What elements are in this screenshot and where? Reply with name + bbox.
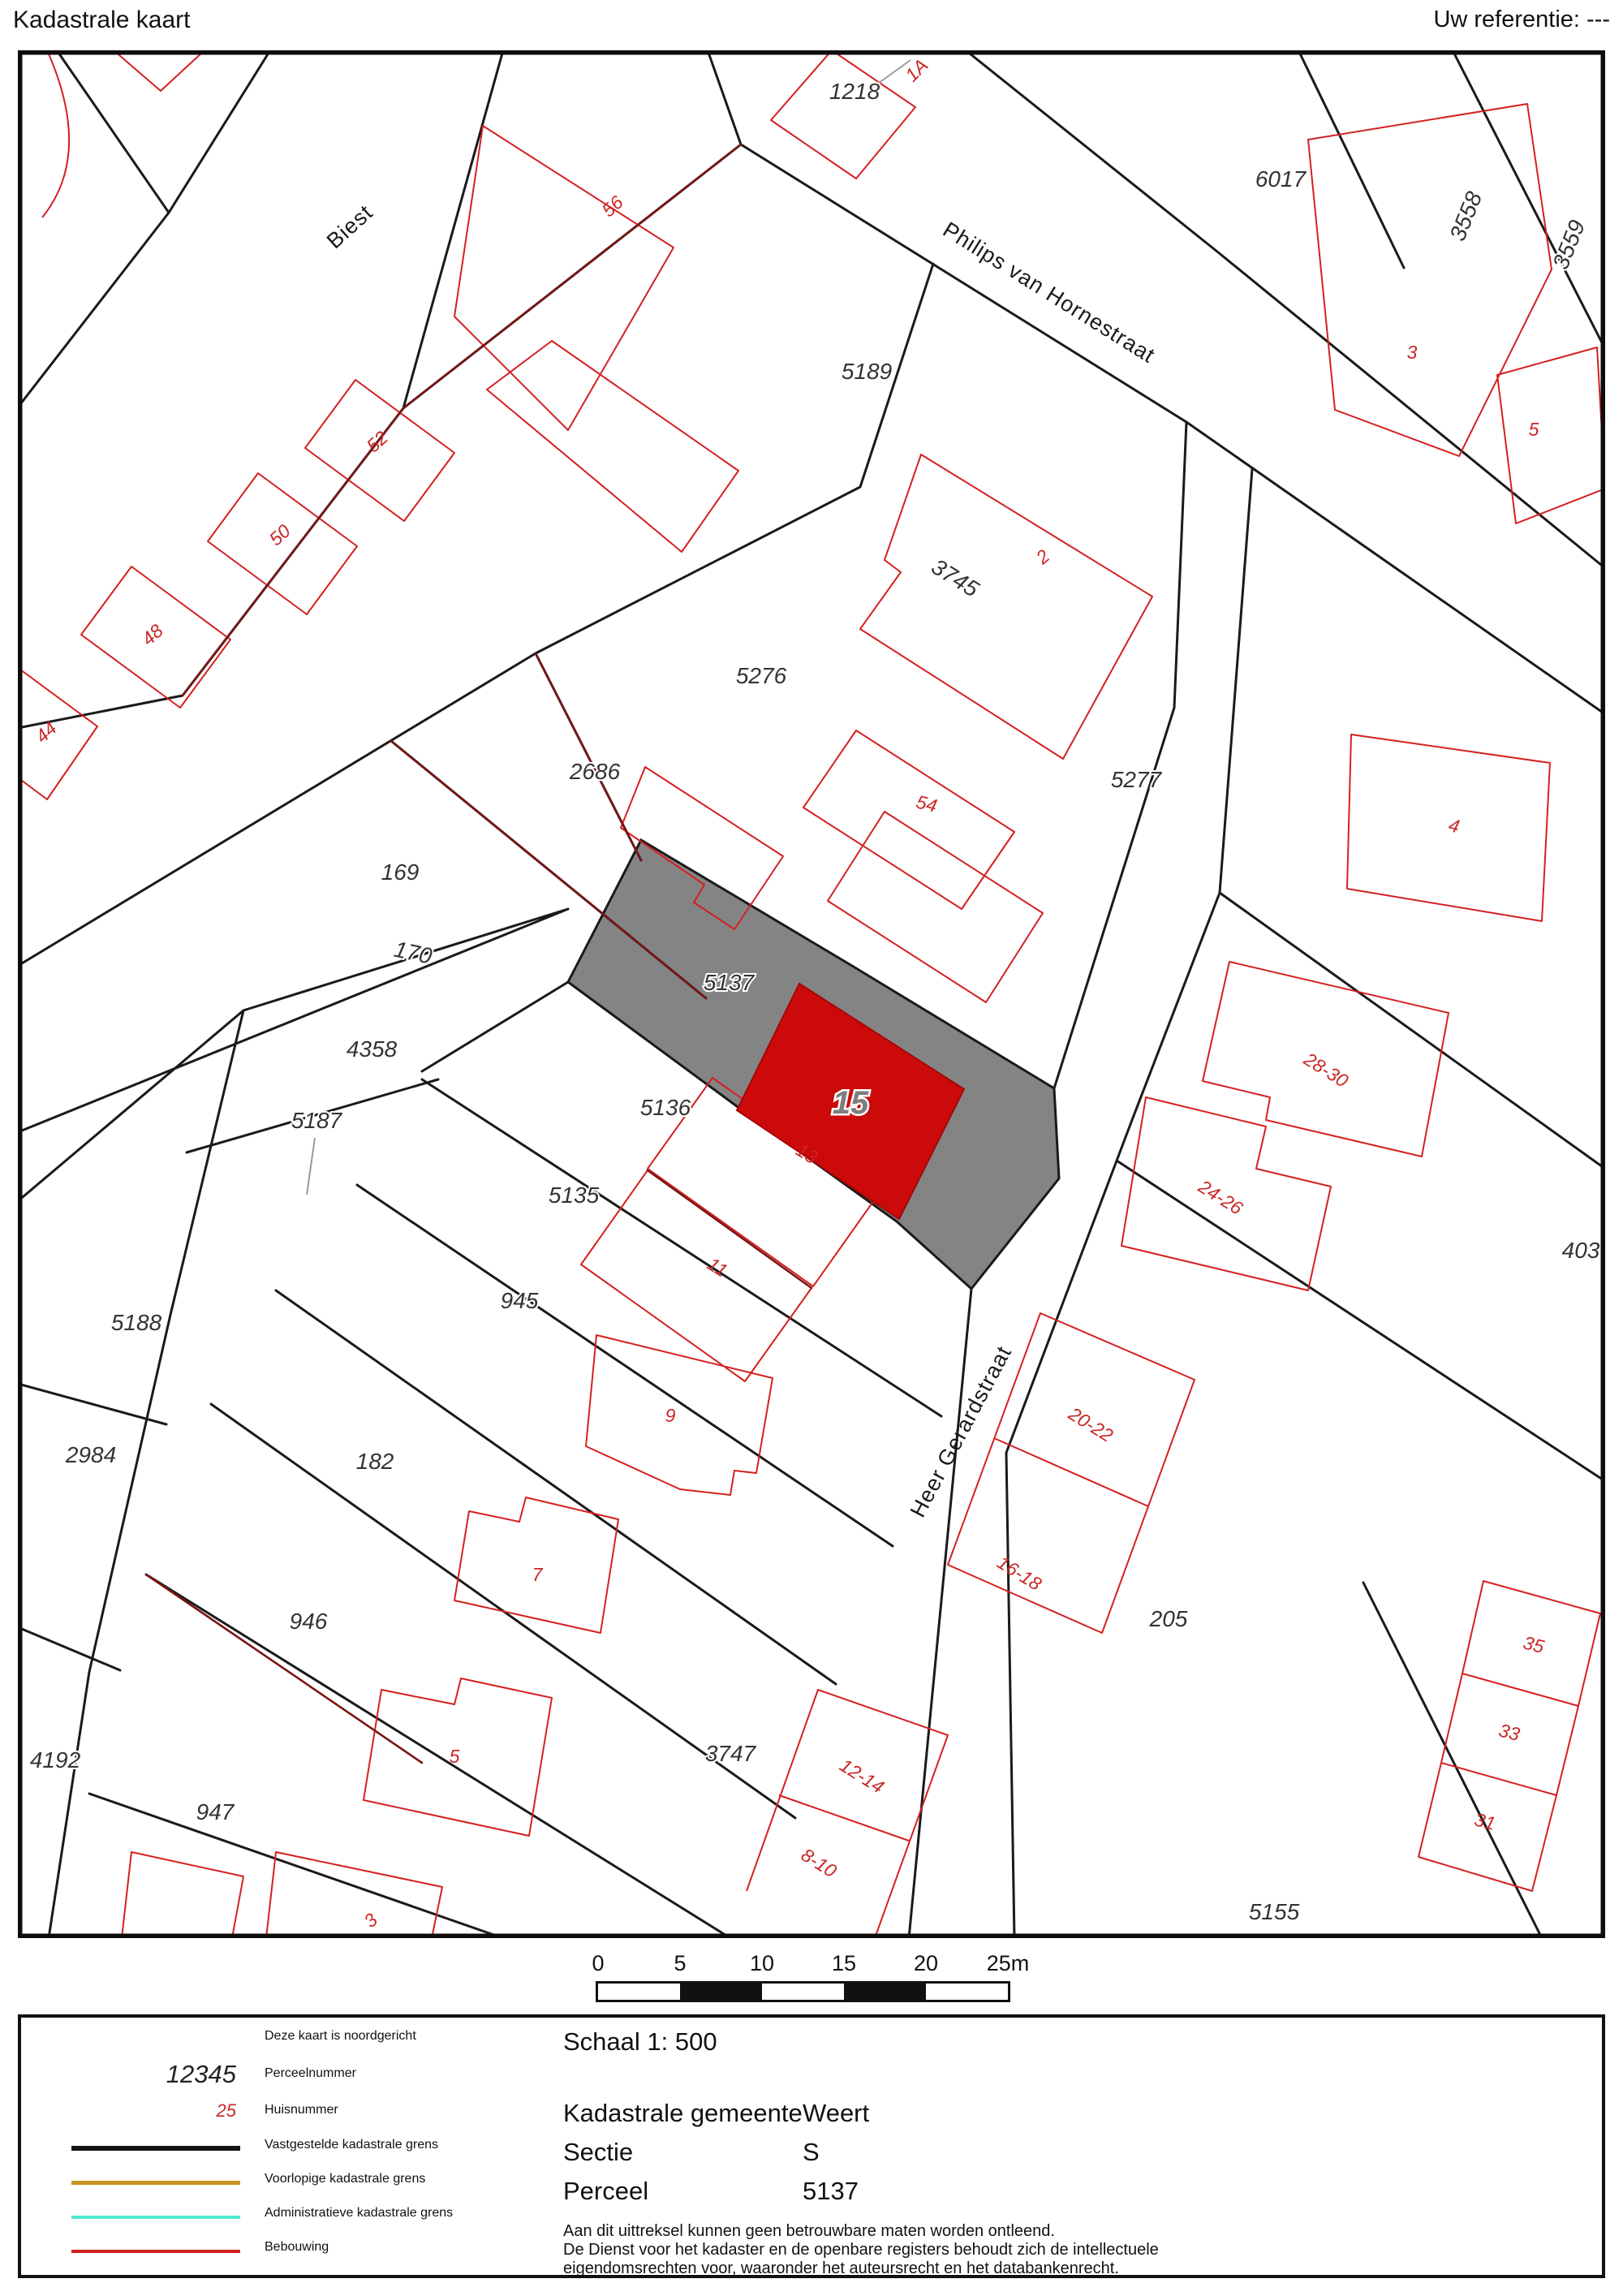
parcel-number-3559: 3559 xyxy=(1548,217,1590,273)
legend-item-label: Huisnummer xyxy=(265,2103,338,2117)
scale-tick-25m: 25m xyxy=(987,1951,1030,1976)
disclaimer-line: De Dienst voor het kadaster en de openba… xyxy=(563,2241,1159,2259)
info-key: Sectie xyxy=(563,2138,633,2167)
parcel-number-170: 170 xyxy=(392,937,435,969)
house-number-4: 4 xyxy=(1447,814,1462,837)
house-number-35: 35 xyxy=(1521,1632,1546,1657)
house-number-8-10: 8-10 xyxy=(798,1844,841,1882)
parcel-number-5276: 5276 xyxy=(736,663,787,688)
scale-tick-20: 20 xyxy=(914,1951,938,1976)
parcel-number-946: 946 xyxy=(290,1609,328,1634)
parcel-number-3745: 3745 xyxy=(927,554,984,602)
house-number-31: 31 xyxy=(1472,1809,1497,1834)
disclaimer-line: eigendomsrechten voor, waaronder het aut… xyxy=(563,2259,1119,2278)
disclaimer-line: Aan dit uittreksel kunnen geen betrouwba… xyxy=(563,2222,1055,2241)
parcel-number-2686: 2686 xyxy=(569,759,621,784)
cadastral-map-page: Kadastrale kaart Uw referentie: --- Bies… xyxy=(0,0,1623,2296)
parcel-number-1218: 1218 xyxy=(829,79,880,104)
parcel-number-5188: 5188 xyxy=(111,1310,162,1335)
parcel-number-182: 182 xyxy=(356,1449,394,1474)
house-number-3: 3 xyxy=(359,1909,381,1932)
parcel-number-945: 945 xyxy=(501,1288,539,1313)
parcel-number-6017: 6017 xyxy=(1255,166,1307,192)
house-number-12-14: 12-14 xyxy=(836,1755,888,1798)
parcel-number-5187: 5187 xyxy=(291,1108,343,1133)
legend-item-label: Voorlopige kadastrale grens xyxy=(265,2172,425,2186)
page-title: Kadastrale kaart xyxy=(13,6,190,34)
info-value: 5137 xyxy=(803,2177,859,2206)
house-number-2: 2 xyxy=(1031,545,1053,569)
legend-item-label: Vastgestelde kadastrale grens xyxy=(265,2138,438,2152)
parcel-number-5277: 5277 xyxy=(1111,767,1163,792)
house-number-7: 7 xyxy=(532,1564,544,1585)
info-value: S xyxy=(803,2138,820,2167)
parcel-number-169: 169 xyxy=(381,859,420,885)
house-number-24-26: 24-26 xyxy=(1195,1175,1247,1219)
scale-tick-15: 15 xyxy=(832,1951,856,1976)
house-number-20-22: 20-22 xyxy=(1065,1402,1117,1446)
parcel-number-5155: 5155 xyxy=(1249,1899,1300,1924)
parcel-number-3747: 3747 xyxy=(705,1741,757,1766)
cadastral-map-svg: BiestPhilips van HornestraatHeer Gerards… xyxy=(18,50,1605,1938)
parcel-number-5136: 5136 xyxy=(640,1095,691,1120)
house-number-symbol: 25 xyxy=(66,2100,236,2122)
house-number-50: 50 xyxy=(265,520,295,550)
scale-text: Schaal 1: 500 xyxy=(563,2027,717,2057)
scale-tick-5: 5 xyxy=(674,1951,686,1976)
house-number-44: 44 xyxy=(31,717,60,747)
legend-item-label: Administratieve kadastrale grens xyxy=(265,2206,453,2221)
info-key: Perceel xyxy=(563,2177,648,2206)
house-number-5: 5 xyxy=(450,1746,460,1767)
legend-item-label: Perceelnummer xyxy=(265,2066,356,2081)
house-number-5: 5 xyxy=(1529,419,1539,440)
house-number-33: 33 xyxy=(1496,1720,1522,1745)
info-value: Weert xyxy=(803,2099,869,2128)
house-number-56: 56 xyxy=(597,192,627,222)
reference-label: Uw referentie: --- xyxy=(1433,6,1610,33)
parcel-number-205: 205 xyxy=(1149,1606,1188,1631)
legend-panel: Deze kaart is noordgericht 12345 Perceel… xyxy=(18,2014,1605,2278)
scale-tick-0: 0 xyxy=(592,1951,604,1976)
street-name-Philips van Hornestraat: Philips van Hornestraat xyxy=(939,218,1160,368)
house-number-3: 3 xyxy=(1407,342,1418,363)
parcel-number-symbol: 12345 xyxy=(66,2060,236,2089)
parcel-number-3558: 3558 xyxy=(1444,187,1487,244)
parcel-number-4358: 4358 xyxy=(347,1036,398,1062)
street-name-Heer Gerardstraat: Heer Gerardstraat xyxy=(906,1342,1017,1521)
map-area: BiestPhilips van HornestraatHeer Gerards… xyxy=(18,50,1605,1938)
provisional-boundary-swatch xyxy=(71,2181,240,2185)
house-number-52: 52 xyxy=(362,427,392,457)
house-number-48: 48 xyxy=(137,620,167,650)
parcel-number-15: 15 xyxy=(833,1085,869,1121)
parcel-number-2984: 2984 xyxy=(65,1442,116,1467)
established-boundary-swatch xyxy=(71,2146,240,2151)
house-number-1A: 1A xyxy=(901,54,932,85)
scale-bar-frame xyxy=(596,1981,1010,2002)
scale-tick-10: 10 xyxy=(750,1951,774,1976)
north-note: Deze kaart is noordgericht xyxy=(265,2029,416,2044)
info-key: Kadastrale gemeente xyxy=(563,2099,803,2128)
parcel-number-5189: 5189 xyxy=(842,359,892,384)
parcel-number-4192: 4192 xyxy=(30,1747,81,1773)
house-number-28-30: 28-30 xyxy=(1300,1048,1353,1092)
parcel-number-5137: 5137 xyxy=(704,970,756,995)
building-swatch xyxy=(71,2250,240,2253)
house-number-9: 9 xyxy=(665,1405,676,1426)
house-number-54: 54 xyxy=(914,791,939,816)
street-name-Biest: Biest xyxy=(322,200,377,253)
parcel-number-403: 403 xyxy=(1562,1238,1600,1263)
legend-item-label: Bebouwing xyxy=(265,2240,329,2255)
parcel-number-947: 947 xyxy=(196,1799,235,1824)
parcel-number-5135: 5135 xyxy=(549,1182,600,1208)
administrative-boundary-swatch xyxy=(71,2216,240,2219)
